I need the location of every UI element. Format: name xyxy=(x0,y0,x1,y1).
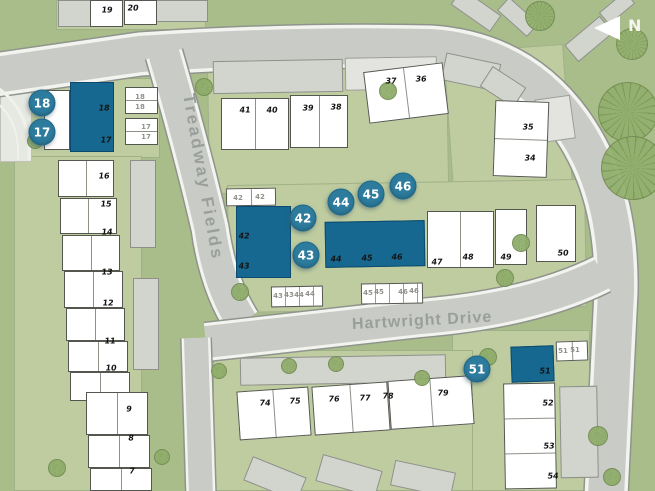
north-indicator: N xyxy=(592,14,652,44)
plot-badge[interactable]: 42 xyxy=(290,205,317,232)
plot-badge[interactable]: 45 xyxy=(358,181,385,208)
plot-badge[interactable]: 51 xyxy=(464,356,491,383)
plot-badge[interactable]: 17 xyxy=(29,119,56,146)
plot-badge[interactable]: 43 xyxy=(293,242,320,269)
site-plan-map: 18181717424243434444454546465151 1920181… xyxy=(0,0,655,491)
plot-badge[interactable]: 18 xyxy=(29,90,56,117)
north-arrow-icon xyxy=(594,16,620,40)
plot-badge[interactable]: 46 xyxy=(390,173,417,200)
north-label: N xyxy=(628,16,641,35)
plot-badge[interactable]: 44 xyxy=(328,189,355,216)
plot-badges-layer: 1817424344454651 xyxy=(0,0,655,491)
